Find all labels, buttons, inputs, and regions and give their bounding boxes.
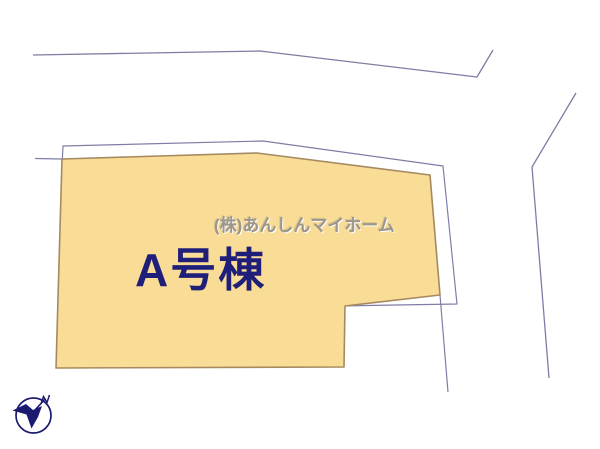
road-boundary-right	[532, 93, 576, 378]
plot-map-canvas: (株)あんしんマイホーム A号棟	[0, 0, 600, 449]
road-boundary-upper	[33, 50, 493, 77]
parcel-top-edge-overshoot	[35, 159, 62, 160]
north-compass-icon	[13, 395, 52, 433]
parcel-a-label: A号棟	[135, 234, 266, 300]
company-watermark: (株)あんしんマイホーム	[214, 211, 394, 236]
parcel-right-edge-extension	[440, 295, 448, 392]
